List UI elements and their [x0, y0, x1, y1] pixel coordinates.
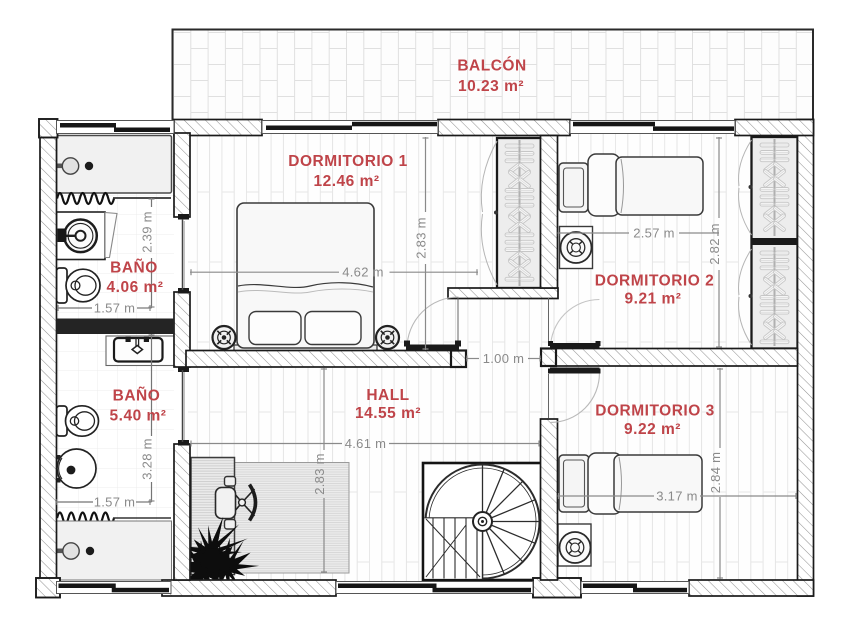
- svg-text:BAÑO: BAÑO: [113, 387, 161, 405]
- svg-text:1.57 m: 1.57 m: [94, 495, 136, 510]
- svg-text:10.23 m²: 10.23 m²: [458, 78, 524, 95]
- svg-text:DORMITORIO 1: DORMITORIO 1: [288, 153, 407, 170]
- svg-text:2.83 m: 2.83 m: [312, 453, 327, 495]
- svg-text:2.82 m: 2.82 m: [707, 223, 722, 265]
- svg-text:4.61 m: 4.61 m: [345, 436, 387, 451]
- svg-text:9.21 m²: 9.21 m²: [625, 291, 682, 308]
- svg-text:2.83 m: 2.83 m: [414, 217, 429, 259]
- svg-text:5.40 m²: 5.40 m²: [110, 408, 167, 425]
- svg-text:3.28 m: 3.28 m: [140, 438, 155, 480]
- svg-text:4.62 m: 4.62 m: [342, 265, 384, 280]
- svg-text:1.57 m: 1.57 m: [94, 301, 136, 316]
- svg-text:1.00 m: 1.00 m: [483, 351, 525, 366]
- svg-text:BAÑO: BAÑO: [110, 259, 158, 277]
- svg-text:14.55 m²: 14.55 m²: [355, 405, 421, 422]
- svg-text:2.39 m: 2.39 m: [140, 211, 155, 253]
- svg-text:BALCÓN: BALCÓN: [457, 57, 526, 75]
- svg-text:DORMITORIO 3: DORMITORIO 3: [595, 403, 714, 420]
- svg-text:DORMITORIO 2: DORMITORIO 2: [595, 273, 714, 290]
- svg-text:2.84 m: 2.84 m: [708, 452, 723, 494]
- svg-text:HALL: HALL: [366, 387, 409, 404]
- svg-text:3.17 m: 3.17 m: [656, 489, 698, 504]
- svg-text:4.06 m²: 4.06 m²: [107, 279, 164, 296]
- svg-text:9.22 m²: 9.22 m²: [624, 421, 681, 438]
- svg-text:2.57 m: 2.57 m: [633, 226, 675, 241]
- svg-text:12.46 m²: 12.46 m²: [313, 173, 379, 190]
